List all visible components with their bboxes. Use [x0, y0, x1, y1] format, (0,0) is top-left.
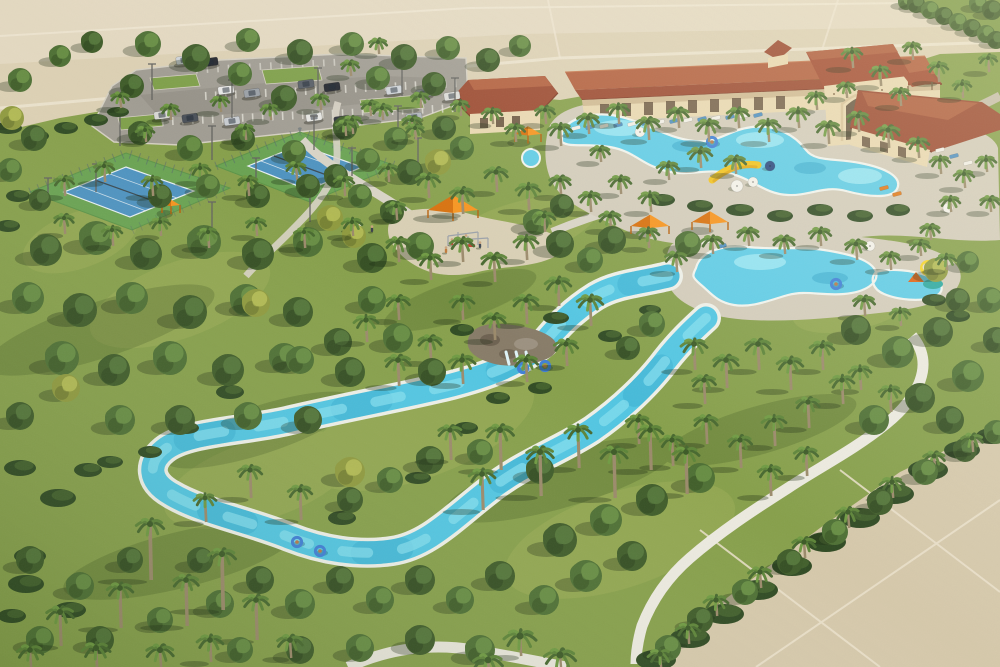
resort-aerial-scene — [0, 0, 1000, 667]
grain-texture — [0, 0, 1000, 667]
aerial-rendering — [0, 0, 1000, 667]
